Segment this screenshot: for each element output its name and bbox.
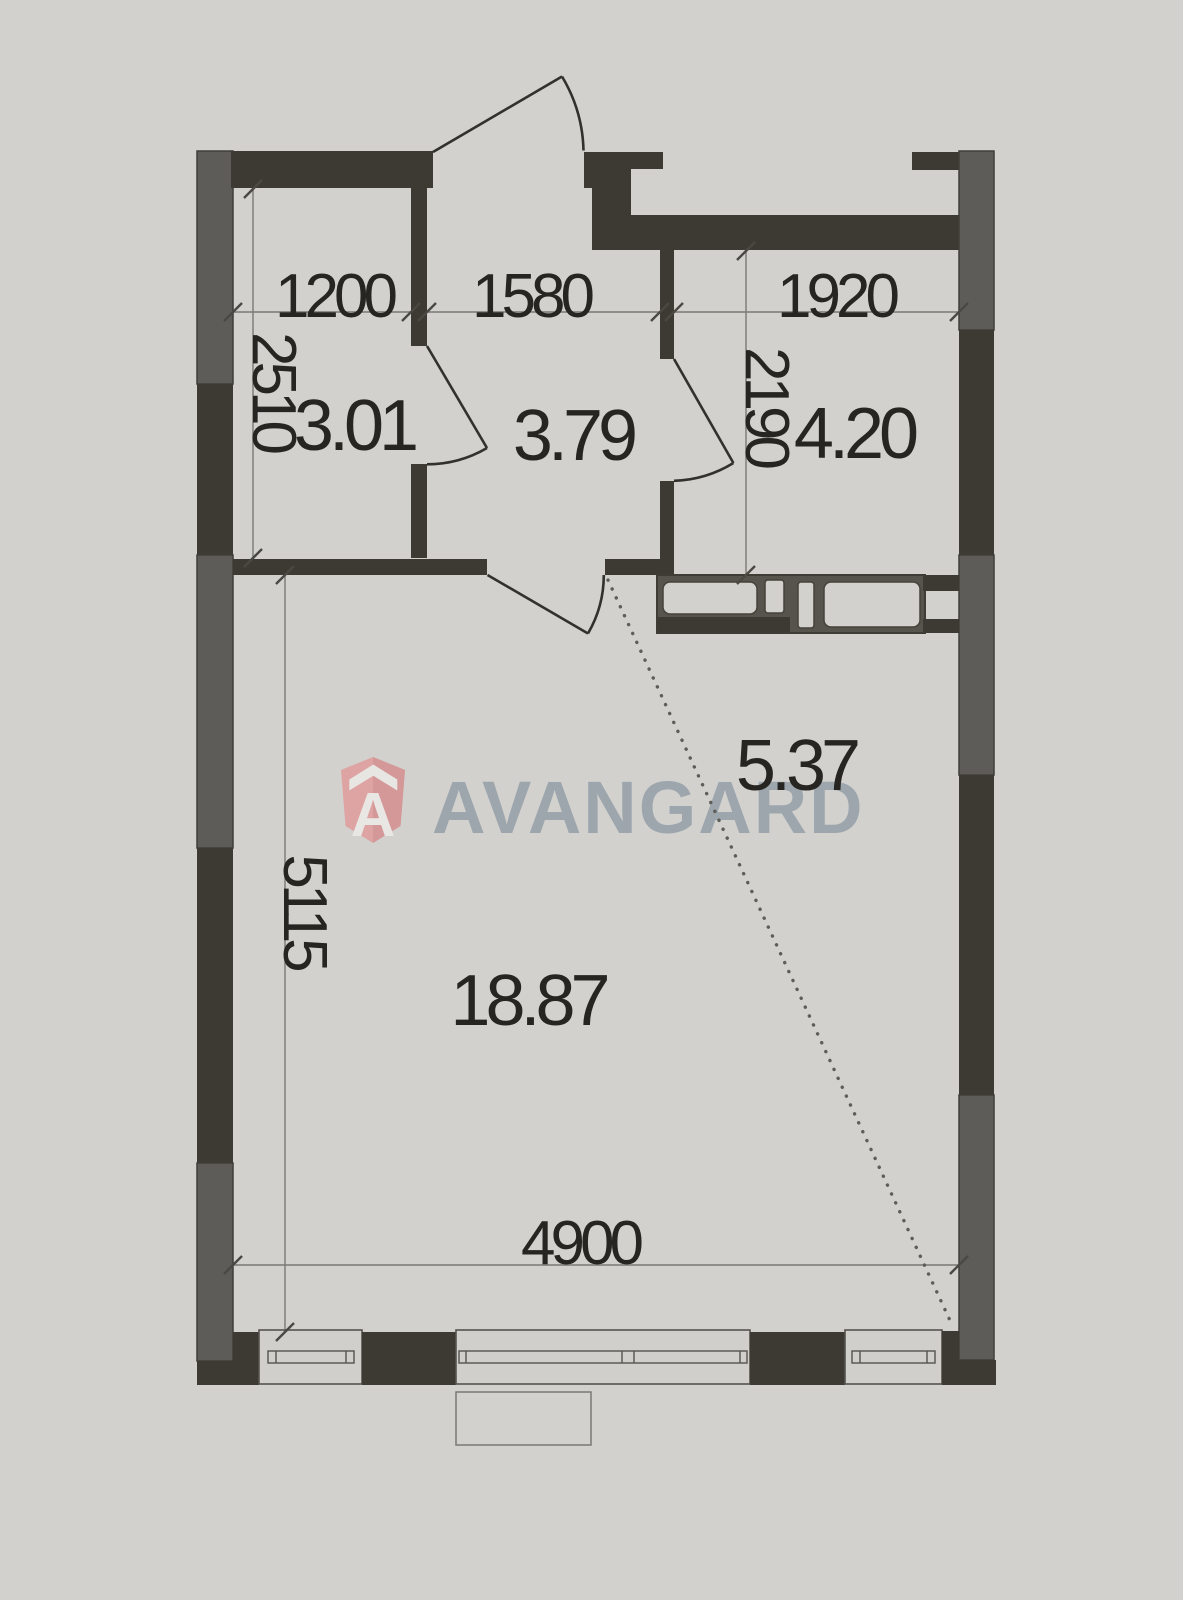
svg-text:2190: 2190 (732, 347, 801, 468)
svg-text:A: A (351, 781, 396, 850)
svg-text:3.01: 3.01 (294, 386, 416, 466)
svg-text:4900: 4900 (521, 1209, 642, 1278)
svg-text:1920: 1920 (777, 262, 898, 331)
svg-text:18.87: 18.87 (450, 961, 607, 1041)
svg-text:5115: 5115 (270, 854, 339, 970)
svg-text:4.20: 4.20 (794, 394, 917, 474)
svg-text:5.37: 5.37 (736, 726, 858, 806)
svg-text:3.79: 3.79 (513, 396, 635, 476)
svg-text:1580: 1580 (472, 262, 593, 331)
svg-text:1200: 1200 (275, 262, 396, 331)
